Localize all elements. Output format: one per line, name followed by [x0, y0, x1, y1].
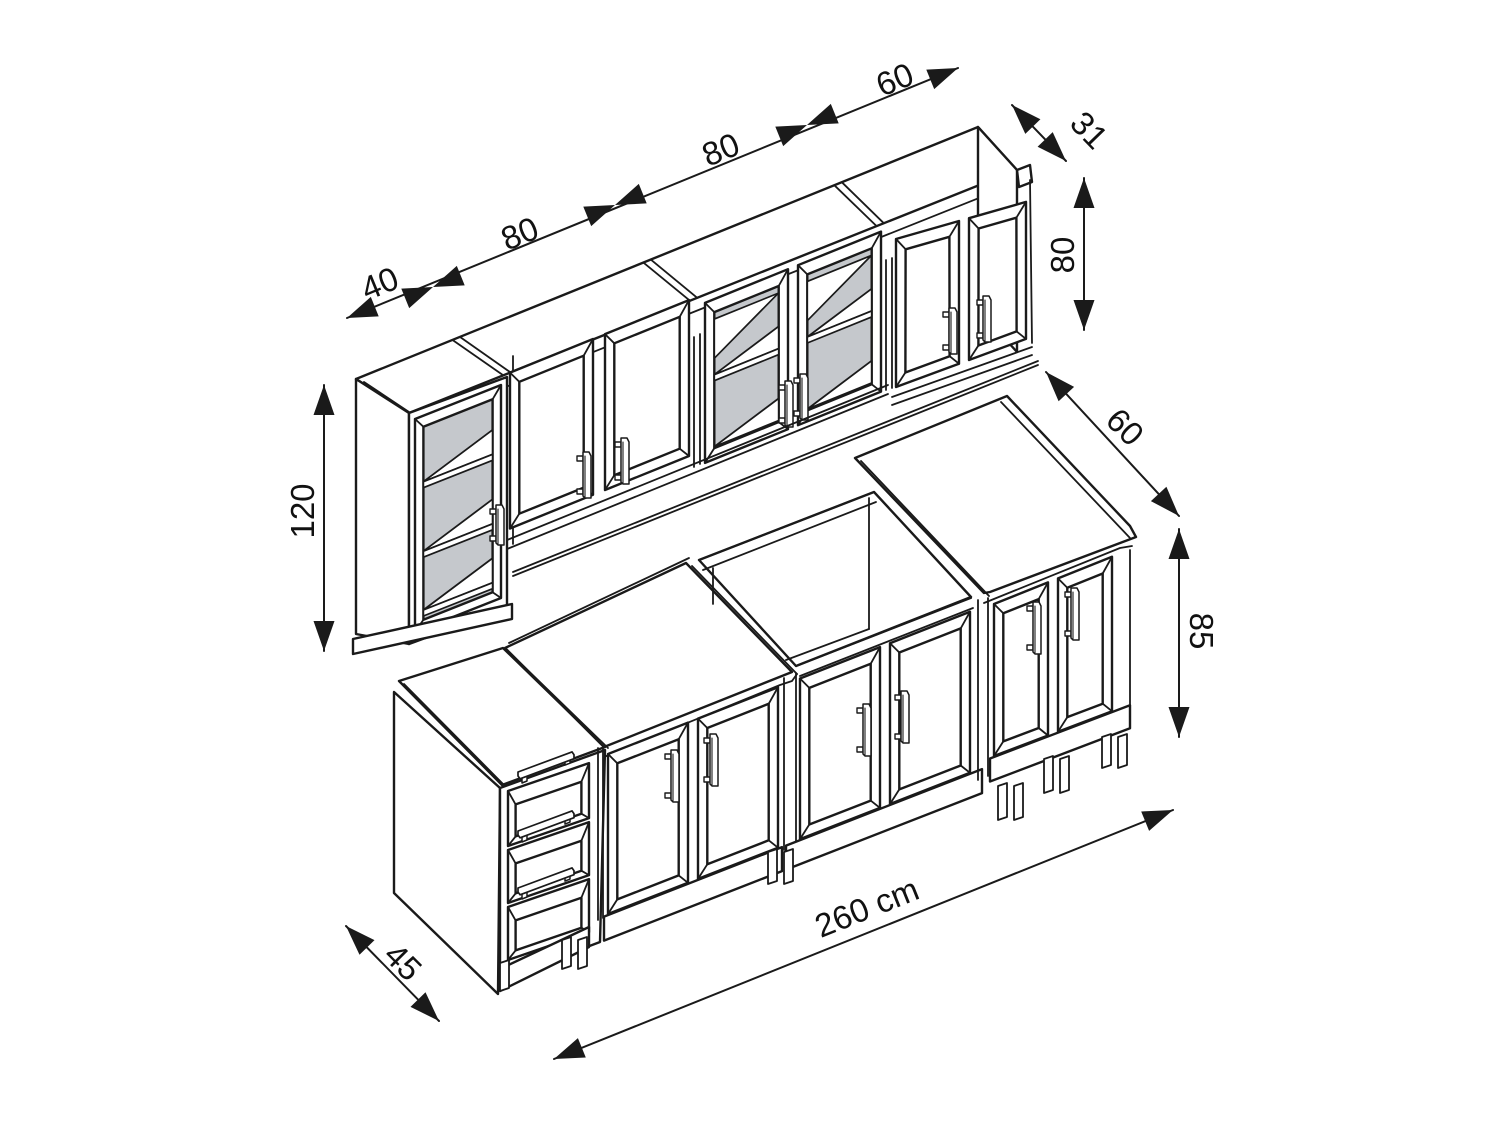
svg-text:80: 80	[1044, 237, 1081, 274]
svg-text:120: 120	[284, 483, 321, 538]
svg-text:85: 85	[1183, 613, 1220, 650]
